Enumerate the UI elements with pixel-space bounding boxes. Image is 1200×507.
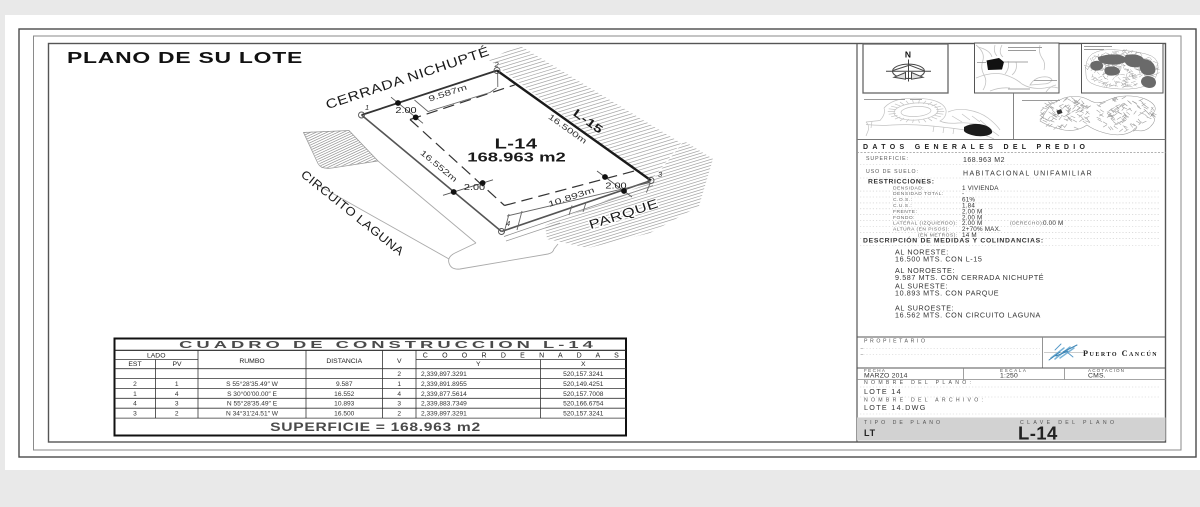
svg-text:520,149.4251: 520,149.4251 bbox=[563, 381, 604, 388]
svg-text:1 VIVIENDA: 1 VIVIENDA bbox=[962, 185, 999, 192]
svg-text:L-14: L-14 bbox=[495, 135, 538, 152]
svg-text:DENSIDAD:: DENSIDAD: bbox=[893, 185, 924, 191]
svg-text:16.500: 16.500 bbox=[334, 411, 355, 418]
svg-text:520,157.7008: 520,157.7008 bbox=[563, 391, 604, 398]
svg-text:C.U.S.:: C.U.S.: bbox=[893, 203, 912, 209]
svg-text:LT: LT bbox=[864, 428, 876, 438]
svg-text:2: 2 bbox=[397, 371, 401, 378]
svg-text:1: 1 bbox=[397, 381, 401, 388]
svg-text:NOMBRE DEL PLANO:: NOMBRE DEL PLANO: bbox=[864, 380, 971, 386]
svg-text:9.587: 9.587 bbox=[336, 381, 353, 388]
svg-text:3: 3 bbox=[175, 401, 179, 408]
svg-text:DENSIDAD TOTAL:: DENSIDAD TOTAL: bbox=[893, 191, 944, 197]
svg-text:V: V bbox=[397, 358, 402, 365]
svg-text:N 34°31'24.51″ W: N 34°31'24.51″ W bbox=[226, 410, 279, 418]
svg-text:S 30°00'00.00″ E: S 30°00'00.00″ E bbox=[227, 390, 277, 398]
svg-text:2,339,897.3291: 2,339,897.3291 bbox=[421, 411, 467, 418]
svg-text:1: 1 bbox=[133, 391, 137, 398]
svg-text:HABITACIONAL UNIFAMILIAR: HABITACIONAL UNIFAMILIAR bbox=[963, 171, 1093, 178]
svg-text:10.893 MTS. CON PARQUE: 10.893 MTS. CON PARQUE bbox=[895, 289, 999, 298]
svg-text:520,157.3241: 520,157.3241 bbox=[563, 411, 604, 418]
svg-text:ALTURA (EN PISOS):: ALTURA (EN PISOS): bbox=[893, 227, 950, 233]
svg-text:USO DE SUELO:: USO DE SUELO: bbox=[866, 169, 918, 175]
svg-text:N: N bbox=[905, 50, 911, 60]
svg-text:3: 3 bbox=[397, 401, 401, 408]
svg-text:S 55°28'35.49″ W: S 55°28'35.49″ W bbox=[226, 380, 278, 388]
svg-text:2,339,897.3291: 2,339,897.3291 bbox=[421, 371, 467, 378]
svg-text:Puerto Cancún: Puerto Cancún bbox=[1083, 349, 1158, 358]
svg-text:168.963 M2: 168.963 M2 bbox=[963, 157, 1005, 164]
svg-text:DESCRIPCIÓN DE MEDIDAS Y COLIN: DESCRIPCIÓN DE MEDIDAS Y COLINDANCIAS: bbox=[863, 236, 1044, 245]
svg-text:2.00: 2.00 bbox=[605, 182, 626, 191]
svg-text:LOTE 14.DWG: LOTE 14.DWG bbox=[864, 403, 927, 412]
svg-text:MARZO 2014: MARZO 2014 bbox=[864, 372, 908, 379]
svg-text:C.O.S.:: C.O.S.: bbox=[893, 197, 913, 203]
svg-text:SUPERFICIE:: SUPERFICIE: bbox=[866, 156, 908, 162]
svg-text:4: 4 bbox=[133, 401, 137, 408]
svg-text:RESTRICCIONES:: RESTRICCIONES: bbox=[868, 179, 935, 186]
svg-text:2: 2 bbox=[494, 60, 500, 69]
svg-text:L-14: L-14 bbox=[1018, 423, 1058, 444]
svg-text:2,339,883.7349: 2,339,883.7349 bbox=[421, 401, 467, 408]
svg-text:4: 4 bbox=[506, 219, 510, 228]
svg-text:PV: PV bbox=[172, 361, 182, 368]
svg-text:Y: Y bbox=[476, 361, 481, 368]
svg-text:10.893: 10.893 bbox=[334, 401, 355, 408]
svg-text:16.500 MTS. CON L-15: 16.500 MTS. CON L-15 bbox=[895, 255, 983, 264]
svg-text:2.00: 2.00 bbox=[395, 106, 416, 115]
svg-text:3: 3 bbox=[133, 411, 137, 418]
svg-text:2: 2 bbox=[175, 411, 179, 418]
svg-text:TIPO DE PLANO: TIPO DE PLANO bbox=[864, 420, 940, 426]
svg-text:0.00 M: 0.00 M bbox=[1043, 220, 1063, 227]
svg-text:EST: EST bbox=[128, 361, 141, 368]
svg-text:16.552: 16.552 bbox=[334, 391, 355, 398]
svg-text:CUADRO DE CONSTRUCCION L-14: CUADRO DE CONSTRUCCION L-14 bbox=[179, 339, 597, 351]
svg-text:4: 4 bbox=[175, 391, 179, 398]
svg-text:-: - bbox=[861, 352, 863, 358]
svg-text:1: 1 bbox=[175, 381, 179, 388]
svg-text:16.562 MTS. CON CIRCUITO LAGUN: 16.562 MTS. CON CIRCUITO LAGUNA bbox=[895, 311, 1041, 320]
svg-text:LOTE 14: LOTE 14 bbox=[864, 387, 902, 396]
svg-text:1:250: 1:250 bbox=[1000, 372, 1018, 379]
svg-text:FONDO:: FONDO: bbox=[893, 215, 915, 221]
svg-text:SUPERFICIE = 168.963 m2: SUPERFICIE = 168.963 m2 bbox=[270, 421, 481, 434]
svg-text:RUMBO: RUMBO bbox=[239, 358, 264, 365]
svg-text:2: 2 bbox=[133, 381, 137, 388]
svg-text:2.00: 2.00 bbox=[464, 183, 485, 192]
svg-text:1: 1 bbox=[365, 103, 369, 112]
svg-text:168.963 m2: 168.963 m2 bbox=[467, 151, 566, 165]
svg-text:2: 2 bbox=[397, 411, 401, 418]
svg-text:FRENTE:: FRENTE: bbox=[893, 209, 917, 215]
svg-text:520,157.3241: 520,157.3241 bbox=[563, 371, 604, 378]
svg-text:2,339,877.5614: 2,339,877.5614 bbox=[421, 391, 467, 398]
svg-text:520,166.6754: 520,166.6754 bbox=[563, 401, 604, 408]
svg-text:DISTANCIA: DISTANCIA bbox=[326, 358, 362, 365]
svg-text:CMS.: CMS. bbox=[1088, 372, 1106, 379]
svg-text:LATERAL (IZQUIERDO):: LATERAL (IZQUIERDO): bbox=[893, 221, 957, 227]
svg-text:LADO: LADO bbox=[147, 353, 166, 360]
svg-text:4: 4 bbox=[397, 391, 401, 398]
svg-text:(DERECHO):: (DERECHO): bbox=[1010, 221, 1044, 227]
svg-text:N 55°28'35.49″ E: N 55°28'35.49″ E bbox=[227, 400, 278, 408]
svg-text:X: X bbox=[581, 361, 586, 368]
svg-text:2,339,891.8955: 2,339,891.8955 bbox=[421, 381, 467, 388]
svg-text:PLANO DE SU LOTE: PLANO DE SU LOTE bbox=[67, 50, 303, 67]
